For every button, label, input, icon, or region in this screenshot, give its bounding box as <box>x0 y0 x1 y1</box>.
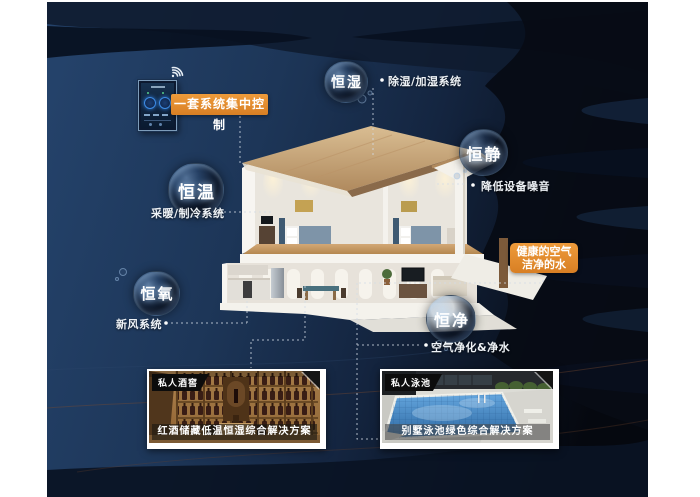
screen-button <box>159 123 162 126</box>
dial-knob <box>144 97 156 109</box>
screen-title-bar <box>151 86 165 88</box>
screen-divider <box>144 120 171 121</box>
wine-cellar-card: 私人酒窖 红酒储藏低温恒湿综合解决方案 <box>147 369 326 449</box>
bubble-quiet: 恒静 <box>459 129 508 176</box>
label-oxygen-system: 新风系统 <box>116 316 162 332</box>
bubble-oxygen: 恒氧 <box>133 271 180 316</box>
central-control-label: 一套系统集中控制 <box>171 94 268 115</box>
highlight-line1: 健康的空气 <box>510 245 578 258</box>
label-humidity-system: 除湿/加湿系统 <box>388 73 462 89</box>
bubble-humidity: 恒湿 <box>324 61 368 103</box>
wine-cellar-badge: 私人酒窖 <box>152 374 209 391</box>
poster: 一套系统集中控制 恒湿 恒静 恒温 恒氧 恒净 除湿/加湿系统 降低设备噪音 采… <box>0 0 700 497</box>
label-temperature-system: 采暖/制冷系统 <box>151 205 225 221</box>
artwork-area: 一套系统集中控制 恒湿 恒静 恒温 恒氧 恒净 除湿/加湿系统 降低设备噪音 采… <box>47 2 648 497</box>
pool-card: 私人泳池 别墅泳池绿色综合解决方案 <box>380 369 559 449</box>
status-dot <box>147 92 149 94</box>
wine-cellar-photo: 私人酒窖 红酒储藏低温恒湿综合解决方案 <box>149 371 320 443</box>
wifi-icon <box>168 63 186 81</box>
pool-badge: 私人泳池 <box>385 374 442 391</box>
dial-knob <box>159 97 171 109</box>
pool-photo: 私人泳池 别墅泳池绿色综合解决方案 <box>382 371 553 443</box>
healthy-air-water-box: 健康的空气 洁净的水 <box>510 243 578 273</box>
screen-label <box>162 114 168 116</box>
corner-fold <box>535 371 553 389</box>
corner-fold <box>302 371 320 389</box>
wine-cellar-caption: 红酒储藏低温恒湿综合解决方案 <box>152 424 317 440</box>
control-panel-screen <box>141 83 174 128</box>
screen-button <box>149 123 152 126</box>
highlight-line2: 洁净的水 <box>510 258 578 271</box>
screen-label <box>144 114 150 116</box>
pool-caption: 别墅泳池绿色综合解决方案 <box>385 424 550 440</box>
label-purity-system: 空气净化&净水 <box>431 339 510 355</box>
status-dot <box>162 92 164 94</box>
label-quiet-system: 降低设备噪音 <box>481 178 550 194</box>
screen-label <box>153 114 159 116</box>
bubble-purity: 恒净 <box>426 295 476 343</box>
